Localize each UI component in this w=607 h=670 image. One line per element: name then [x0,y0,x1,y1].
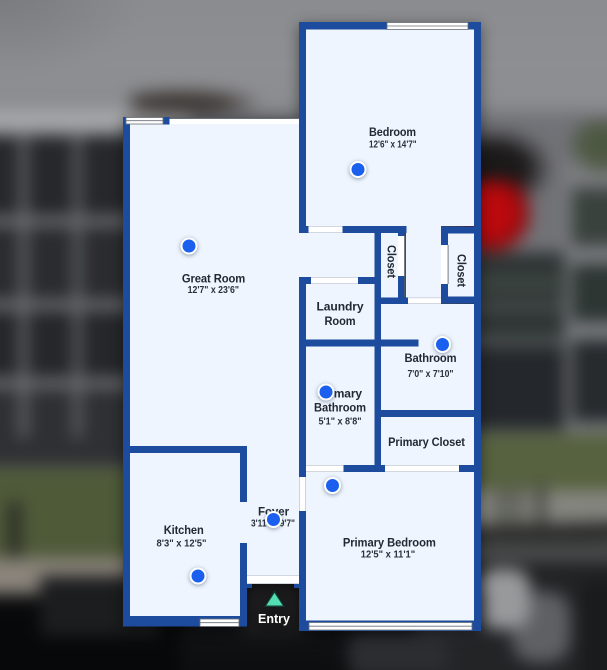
svg-text:Bathroom: Bathroom [314,401,366,415]
svg-text:Primary Bedroom: Primary Bedroom [343,536,436,550]
svg-text:12'7" x 23'6": 12'7" x 23'6" [188,285,239,296]
svg-text:Primary Closet: Primary Closet [388,435,465,449]
svg-text:7'0" x 7'10": 7'0" x 7'10" [408,369,454,380]
svg-text:Room: Room [325,314,356,328]
svg-text:Closet: Closet [385,245,399,278]
svg-text:Kitchen: Kitchen [164,523,204,537]
svg-text:12'6" x 14'7": 12'6" x 14'7" [369,140,417,151]
svg-text:8'3" x 12'5": 8'3" x 12'5" [157,538,207,549]
svg-text:Bathroom: Bathroom [405,351,457,365]
svg-text:Closet: Closet [455,254,469,287]
svg-text:12'5" x 11'1": 12'5" x 11'1" [361,550,415,561]
svg-text:Bedroom: Bedroom [369,125,416,139]
svg-text:Entry: Entry [258,612,290,626]
svg-text:Great Room: Great Room [182,272,245,286]
svg-text:Laundry: Laundry [317,300,364,314]
svg-text:5'1" x 8'8": 5'1" x 8'8" [319,417,362,428]
